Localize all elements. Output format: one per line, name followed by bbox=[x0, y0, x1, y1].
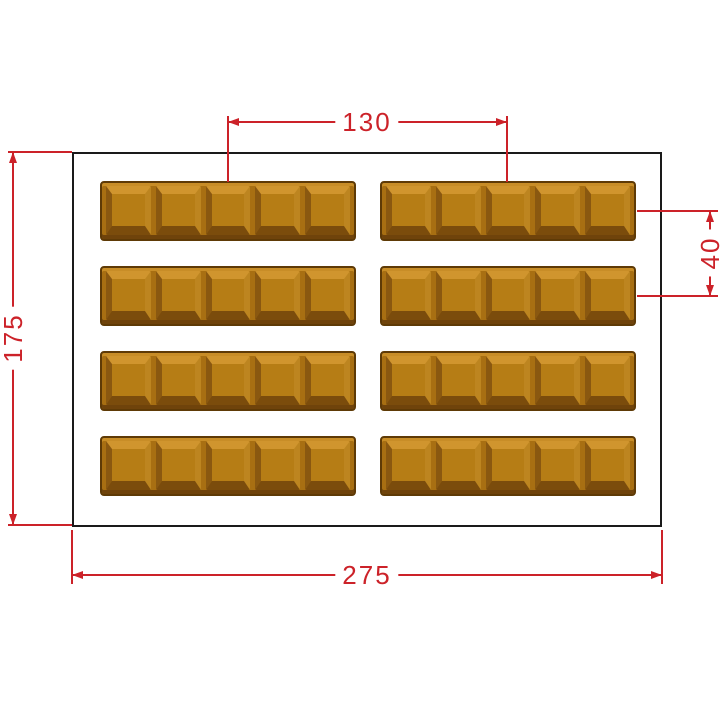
bar-segment bbox=[535, 186, 580, 235]
bar-segment bbox=[585, 356, 630, 405]
chocolate-bar-r4c1 bbox=[100, 436, 356, 496]
dim-175-arrow-down bbox=[9, 514, 17, 525]
chocolate-bar-r3c2 bbox=[380, 351, 636, 411]
bar-segment bbox=[106, 186, 151, 235]
bar-segment bbox=[486, 186, 531, 235]
bar-segment bbox=[156, 441, 201, 490]
bar-segment bbox=[206, 271, 251, 320]
dim-175-extension-bottom bbox=[8, 524, 72, 526]
bar-segment bbox=[486, 356, 531, 405]
bar-segment bbox=[535, 356, 580, 405]
dim-130-arrow-left bbox=[228, 118, 239, 126]
chocolate-bar-r1c2 bbox=[380, 181, 636, 241]
dim-40-arrow-up bbox=[706, 211, 714, 222]
bar-segment bbox=[255, 186, 300, 235]
bar-segment bbox=[106, 441, 151, 490]
dim-175-arrow-up bbox=[9, 152, 17, 163]
bar-segment bbox=[305, 186, 350, 235]
bar-segment bbox=[255, 356, 300, 405]
bar-segment bbox=[386, 441, 431, 490]
bar-segment bbox=[535, 271, 580, 320]
drawing-canvas: 130 40 175 275 bbox=[0, 0, 720, 720]
dim-40-arrow-down bbox=[706, 285, 714, 296]
bar-segment bbox=[305, 441, 350, 490]
bar-segment bbox=[206, 441, 251, 490]
bar-segment bbox=[436, 186, 481, 235]
bar-segment bbox=[255, 441, 300, 490]
bar-segment bbox=[255, 271, 300, 320]
chocolate-bar-r4c2 bbox=[380, 436, 636, 496]
bar-segment bbox=[206, 356, 251, 405]
chocolate-bar-r2c1 bbox=[100, 266, 356, 326]
dim-130-label: 130 bbox=[335, 109, 398, 135]
chocolate-bar-r2c2 bbox=[380, 266, 636, 326]
bar-segment bbox=[486, 271, 531, 320]
dim-175-label: 175 bbox=[0, 306, 26, 369]
bar-segment bbox=[386, 271, 431, 320]
chocolate-bar-r3c1 bbox=[100, 351, 356, 411]
bar-segment bbox=[535, 441, 580, 490]
bar-segment bbox=[106, 271, 151, 320]
bar-segment bbox=[206, 186, 251, 235]
dim-275-arrow-left bbox=[72, 571, 83, 579]
dim-275-label: 275 bbox=[335, 562, 398, 588]
bar-segment bbox=[436, 271, 481, 320]
chocolate-bar-r1c1 bbox=[100, 181, 356, 241]
bar-segment bbox=[106, 356, 151, 405]
bar-segment bbox=[585, 441, 630, 490]
bar-segment bbox=[156, 186, 201, 235]
bar-segment bbox=[305, 356, 350, 405]
bar-segment bbox=[436, 441, 481, 490]
dim-275-arrow-right bbox=[651, 571, 662, 579]
bar-segment bbox=[156, 356, 201, 405]
bar-segment bbox=[156, 271, 201, 320]
bar-segment bbox=[436, 356, 481, 405]
dim-175-extension-top bbox=[8, 151, 72, 153]
dim-40-label: 40 bbox=[697, 230, 720, 277]
bar-segment bbox=[486, 441, 531, 490]
bar-segment bbox=[305, 271, 350, 320]
bar-segment bbox=[386, 186, 431, 235]
dim-130-arrow-right bbox=[496, 118, 507, 126]
bar-segment bbox=[585, 186, 630, 235]
bar-segment bbox=[585, 271, 630, 320]
bar-segment bbox=[386, 356, 431, 405]
